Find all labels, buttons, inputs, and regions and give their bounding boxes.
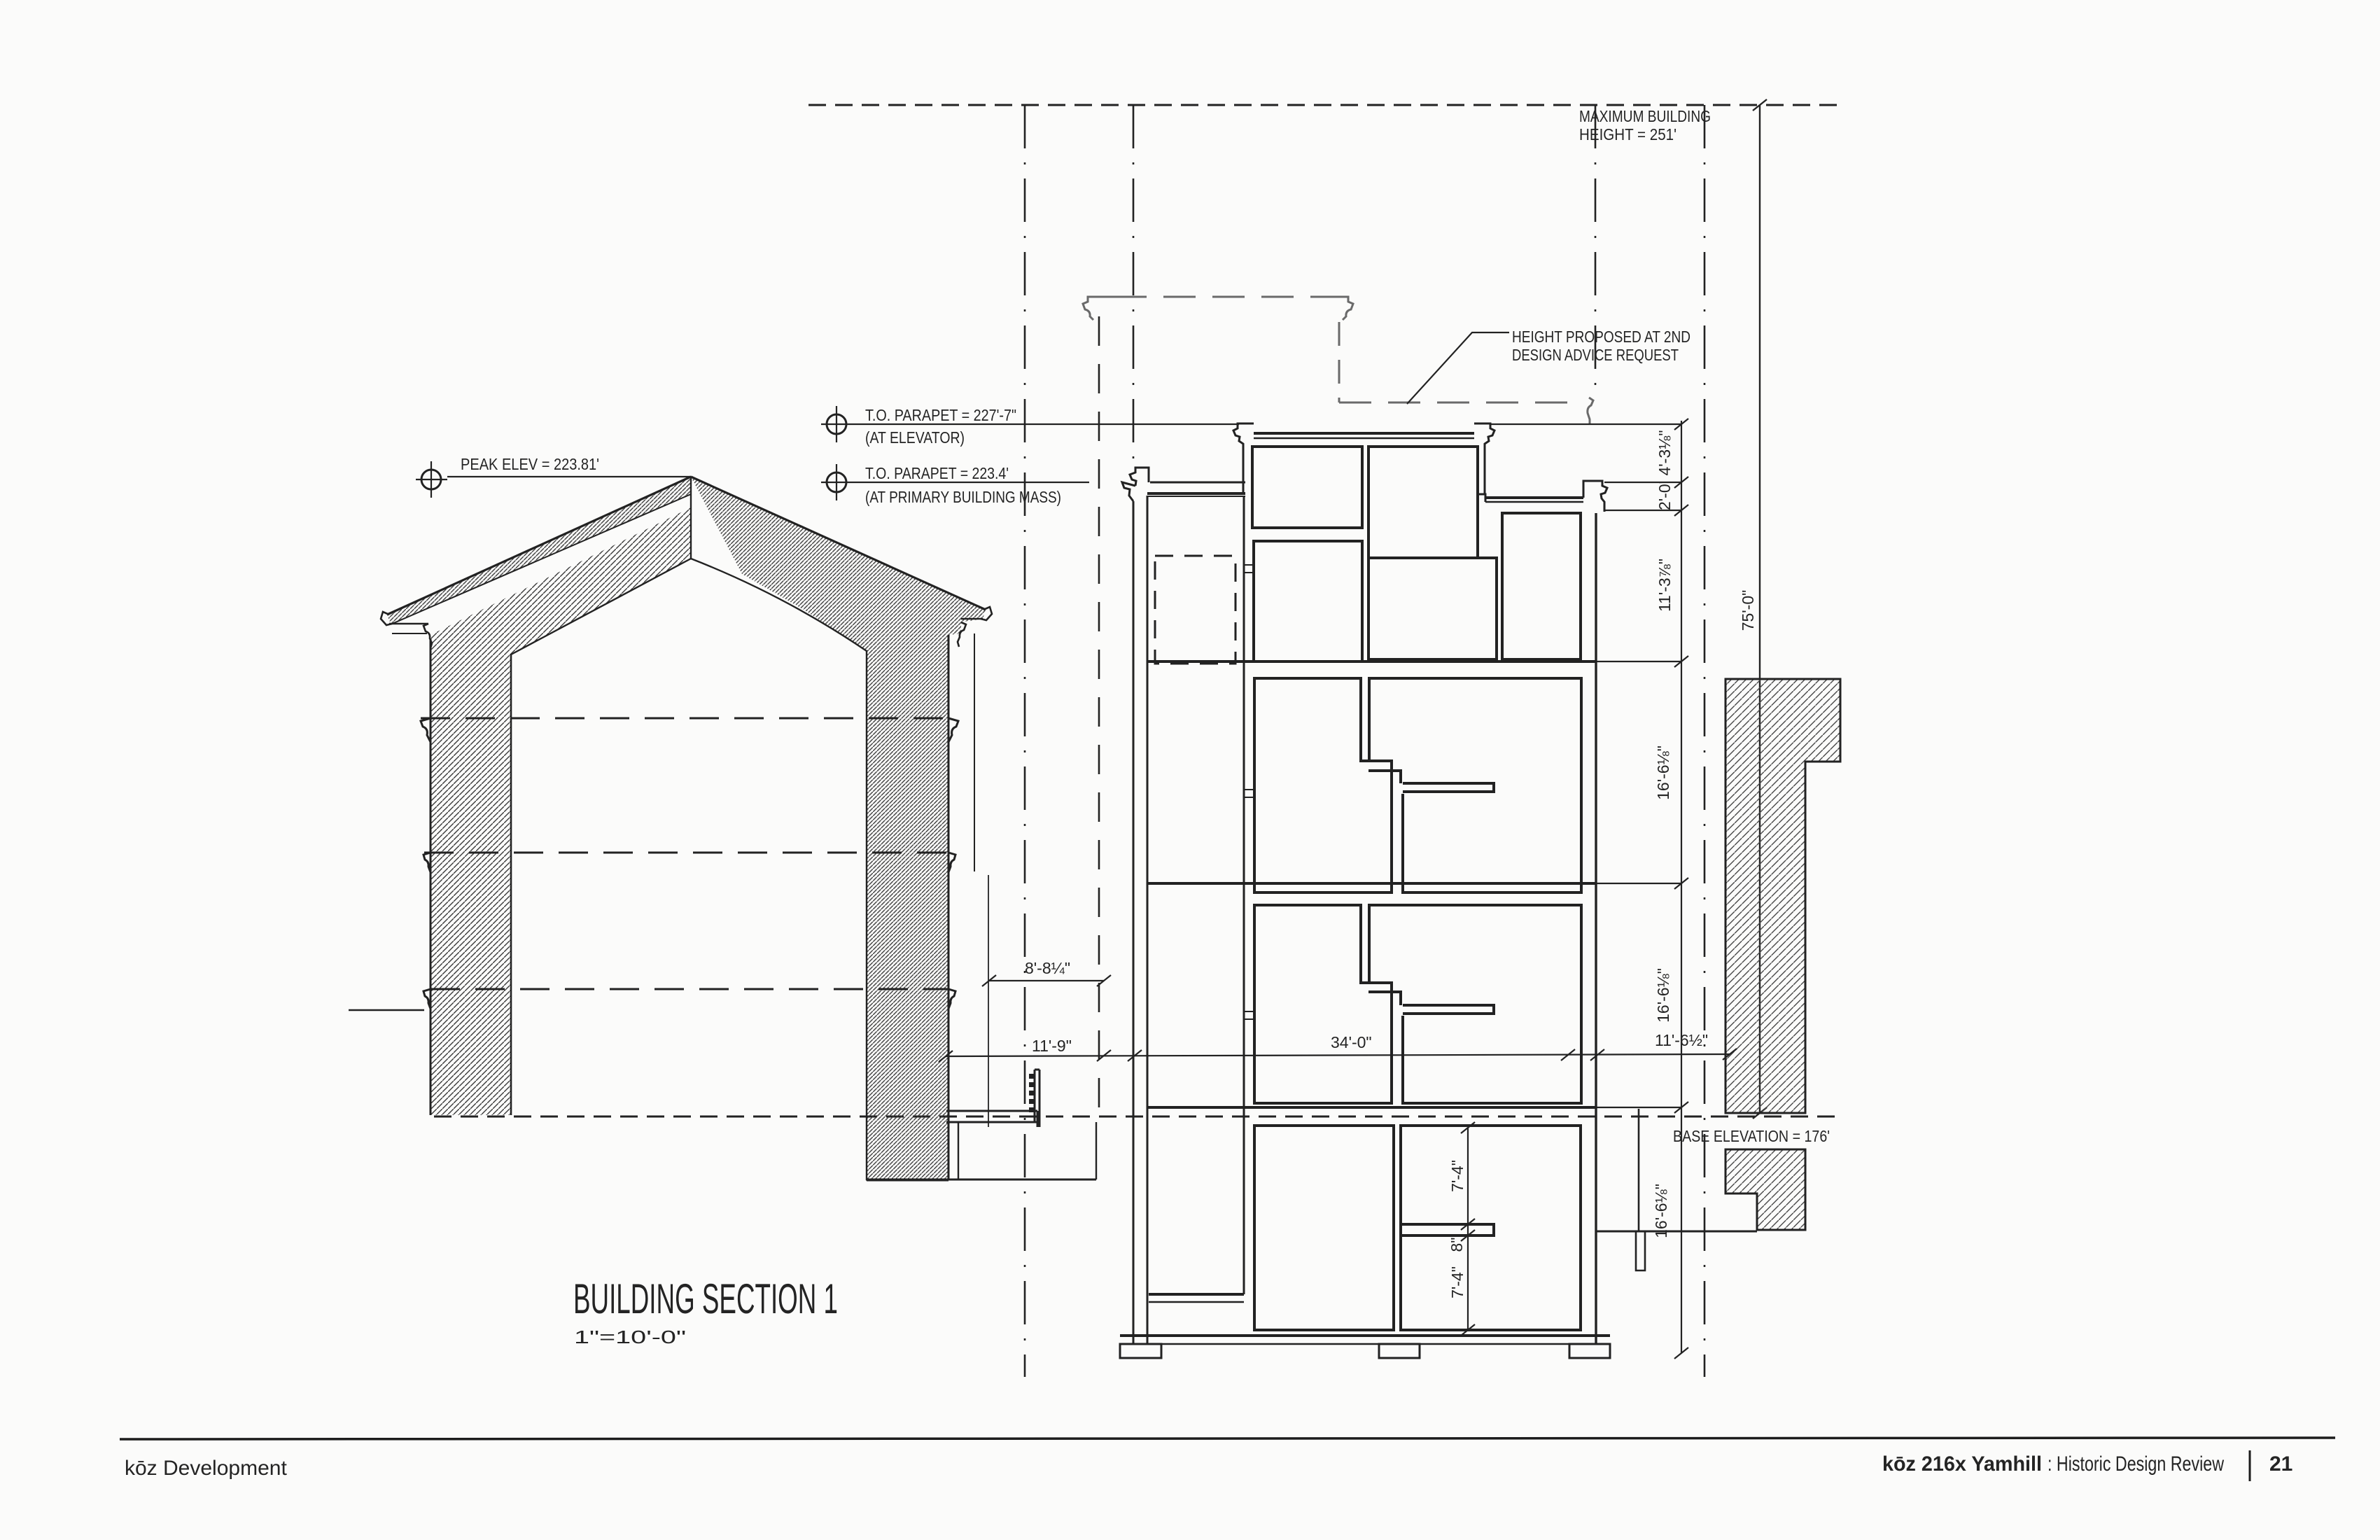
- svg-text:(AT ELEVATOR): (AT ELEVATOR): [865, 428, 965, 447]
- svg-text:16'-6⅛": 16'-6⅛": [1652, 1184, 1670, 1238]
- svg-text:kōz 216x Yamhill: kōz 216x Yamhill: [1882, 1452, 2042, 1476]
- svg-text:11'-9": 11'-9": [1032, 1037, 1072, 1055]
- svg-text:16'-6⅛": 16'-6⅛": [1654, 968, 1672, 1023]
- svg-text:(AT PRIMARY BUILDING MASS): (AT PRIMARY BUILDING MASS): [865, 488, 1061, 506]
- svg-text:: Historic Design Review: : Historic Design Review: [2047, 1452, 2224, 1476]
- svg-text:T.O. PARAPET = 223.4': T.O. PARAPET = 223.4': [865, 464, 1009, 482]
- svg-text:11'-3⅞": 11'-3⅞": [1655, 559, 1674, 612]
- svg-text:16'-6⅛": 16'-6⅛": [1654, 745, 1672, 800]
- svg-text:8": 8": [1448, 1238, 1466, 1252]
- svg-text:PEAK ELEV = 223.81': PEAK ELEV = 223.81': [461, 455, 599, 473]
- svg-text:BUILDING SECTION 1: BUILDING SECTION 1: [573, 1275, 838, 1322]
- svg-text:2'-0': 2'-0': [1655, 481, 1674, 510]
- svg-text:4'-3⅛": 4'-3⅛": [1655, 430, 1674, 476]
- svg-text:DESIGN ADVICE REQUEST: DESIGN ADVICE REQUEST: [1512, 346, 1679, 364]
- svg-text:75'-0": 75'-0": [1739, 590, 1757, 631]
- svg-text:1"=10'-0": 1"=10'-0": [574, 1326, 686, 1347]
- svg-text:kōz Development: kōz Development: [125, 1457, 287, 1480]
- svg-text:MAXIMUM BUILDING: MAXIMUM BUILDING: [1579, 107, 1711, 125]
- svg-text:T.O. PARAPET = 227'-7": T.O. PARAPET = 227'-7": [865, 406, 1016, 424]
- svg-text:8'-8¼": 8'-8¼": [1025, 959, 1070, 977]
- svg-text:HEIGHT PROPOSED AT 2ND: HEIGHT PROPOSED AT 2ND: [1512, 328, 1690, 346]
- svg-text:HEIGHT = 251': HEIGHT = 251': [1579, 125, 1676, 143]
- svg-text:7'-4": 7'-4": [1448, 1160, 1466, 1192]
- svg-text:21: 21: [2269, 1452, 2292, 1476]
- svg-text:34'-0": 34'-0": [1331, 1033, 1372, 1051]
- svg-text:7'-4": 7'-4": [1448, 1266, 1466, 1298]
- svg-text:11'-6½": 11'-6½": [1655, 1031, 1708, 1049]
- svg-text:BASE ELEVATION = 176': BASE ELEVATION = 176': [1673, 1127, 1830, 1145]
